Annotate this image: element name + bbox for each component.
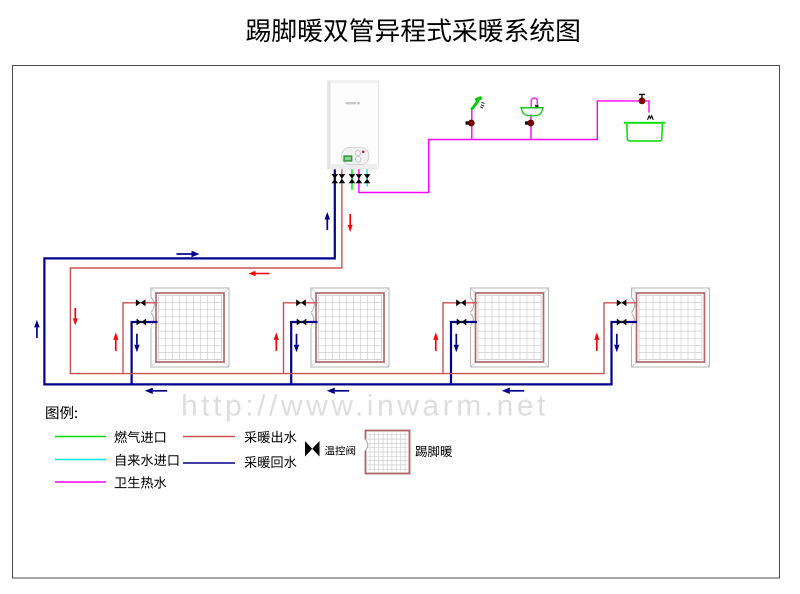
svg-text:http://www.inwarm.net: http://www.inwarm.net: [181, 390, 549, 423]
